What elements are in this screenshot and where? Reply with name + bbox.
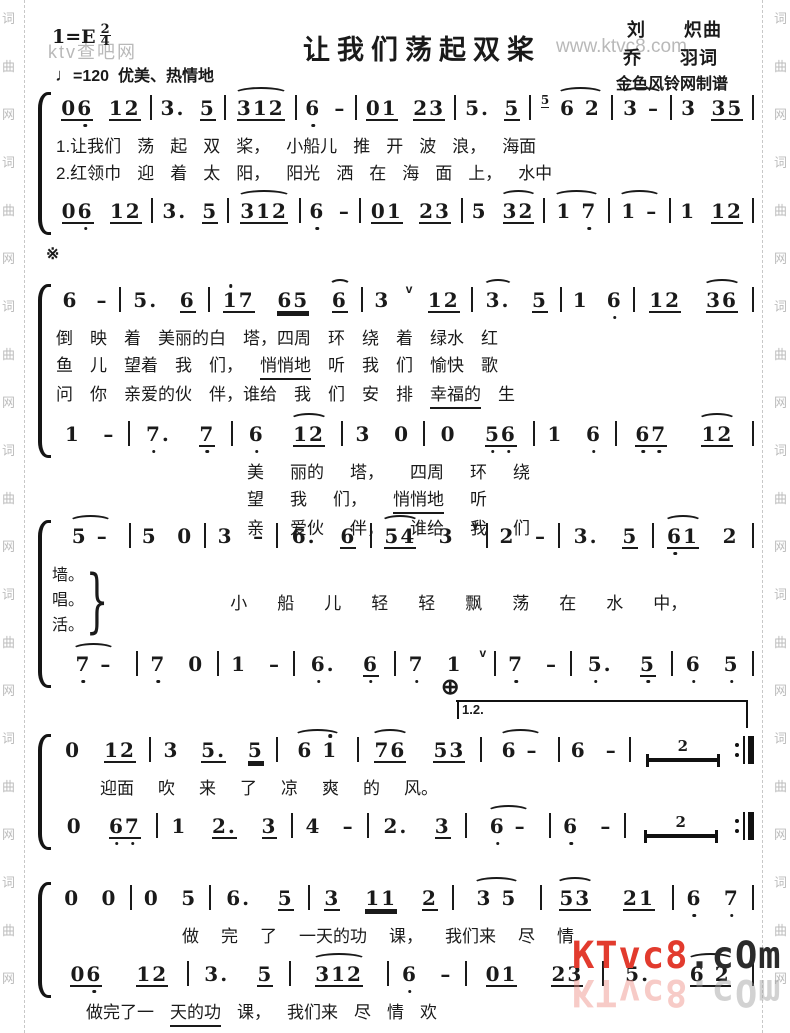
edge-watermark-char: 曲 xyxy=(774,200,787,219)
note-char: 2 xyxy=(152,963,168,985)
measure: 6– xyxy=(52,278,119,311)
note-char: 6 xyxy=(571,739,587,761)
lyrics-line: 鱼儿望着我们，悄悄地听我们愉快歌 xyxy=(52,354,754,380)
measure: 5321 xyxy=(542,876,672,911)
note-char: . xyxy=(308,525,317,547)
composer-credit: 刘 炽曲 xyxy=(627,16,722,42)
repeat-dot xyxy=(735,829,739,833)
measure: 2 xyxy=(626,804,735,847)
note-group: 5. xyxy=(465,97,490,119)
note-char: 6 xyxy=(277,289,293,311)
repeat-dot xyxy=(735,743,739,747)
thick-barline xyxy=(748,736,754,764)
system-brace xyxy=(38,284,51,458)
note-char: 0 xyxy=(394,423,410,445)
tempo-expression: 优美、热情地 xyxy=(118,68,214,85)
measure: 5– xyxy=(52,514,129,547)
note-group: 61 xyxy=(297,739,338,761)
notes-line: 06712.34–2.36–6–2 xyxy=(52,804,754,850)
note-group: 1 xyxy=(547,423,563,445)
note-char: 0 xyxy=(64,887,80,909)
barline xyxy=(752,523,754,548)
lyric-token: 阳光 xyxy=(286,162,320,186)
note-char: 6 xyxy=(311,653,327,675)
measure: 0612 xyxy=(52,189,151,224)
lyric-token: 尽 xyxy=(354,1001,371,1027)
lyrics-line: 美丽的塔，四周环绕 xyxy=(52,461,754,485)
note-group: 56 xyxy=(485,423,517,447)
octave-dot-below xyxy=(730,914,734,918)
lyric-token: 水 xyxy=(606,589,623,614)
edge-watermark-char: 词 xyxy=(2,872,15,891)
lyric-token: 轻 xyxy=(418,589,435,614)
measure: 6712 xyxy=(617,412,752,447)
lyric-token: 环 xyxy=(328,327,345,351)
note-group: 5– xyxy=(72,525,109,547)
edge-watermark-char: 网 xyxy=(774,248,787,267)
watermark-bottom-reflection: KTvc8.cOm xyxy=(572,974,782,1010)
note-char: . xyxy=(220,963,229,985)
note-char: 5 xyxy=(72,525,88,547)
note-char: 3 xyxy=(218,525,234,547)
lyric-token: 海 xyxy=(402,162,419,186)
note-group: 12 xyxy=(136,963,168,987)
octave-dot-below xyxy=(673,552,677,556)
note-char: – xyxy=(97,525,109,547)
note-char: . xyxy=(590,525,599,547)
note-char: 7 xyxy=(374,739,390,761)
octave-dot-below xyxy=(693,914,697,918)
barline xyxy=(752,885,754,910)
edge-watermark-char: 网 xyxy=(2,536,15,555)
lyric-token: 在 xyxy=(369,162,386,186)
lyric-token: 水中 xyxy=(518,162,552,186)
lyric-token: 我们来 xyxy=(287,1001,338,1027)
octave-dot-below xyxy=(93,990,97,994)
rest-tick xyxy=(715,830,718,843)
note-char: 2 xyxy=(585,97,601,119)
note-group: 312 xyxy=(240,200,288,224)
note-group: 5 xyxy=(278,887,294,911)
lyric-token: 小 xyxy=(230,589,247,614)
note-char: 6 xyxy=(607,289,623,311)
note-char: 5 xyxy=(384,525,400,547)
lyric-token: 我 xyxy=(294,383,311,409)
note-char: 6 xyxy=(402,963,418,985)
note-char: – xyxy=(600,815,612,837)
note-group: 3– xyxy=(623,97,660,119)
lyric-token: 中， xyxy=(653,589,687,614)
note-char: 2 xyxy=(623,887,639,909)
edge-watermark-char: 曲 xyxy=(774,344,787,363)
note-char: – xyxy=(646,200,658,222)
note-char: 0 xyxy=(188,653,204,675)
note-group: 35 xyxy=(476,887,517,909)
verse-ending: 唱。 xyxy=(52,592,84,610)
octave-dot-below xyxy=(316,227,320,231)
repeat-dots xyxy=(735,819,739,833)
edge-watermark-char: 曲 xyxy=(774,56,787,75)
measure: 6– xyxy=(297,86,354,119)
measure: 6– xyxy=(467,804,549,837)
note-group: 6 xyxy=(332,289,348,313)
note-group: 5 xyxy=(724,653,740,675)
note-char: 3 xyxy=(356,423,372,445)
lyric-token: 红 xyxy=(481,327,498,351)
lyric-token: 丽的 xyxy=(290,461,324,485)
note-char: 1 xyxy=(109,97,125,119)
note-char: . xyxy=(327,653,336,675)
note-char: . xyxy=(481,97,490,119)
edge-watermark-char: 网 xyxy=(2,968,15,987)
system-brace xyxy=(38,734,51,850)
octave-dot-below xyxy=(514,680,518,684)
edge-watermark-char: 曲 xyxy=(2,632,15,651)
lyric-token: 听 xyxy=(328,354,345,380)
measure: 3– xyxy=(206,514,276,547)
key-signature-text: 1=E xyxy=(52,26,96,48)
lyric-token: 美丽的白 xyxy=(158,327,226,351)
lyric-token: 我 xyxy=(175,354,192,380)
octave-dot-below xyxy=(206,450,210,454)
barline xyxy=(752,421,754,446)
note-char: 5 xyxy=(181,887,197,909)
note-group: 0 xyxy=(144,887,160,909)
measure: 16 xyxy=(562,278,633,311)
note-char: 0 xyxy=(486,963,502,985)
barline xyxy=(752,95,754,120)
repeat-dots xyxy=(735,743,739,757)
edge-watermark-char: 曲 xyxy=(2,776,15,795)
octave-dot-below xyxy=(588,227,592,231)
note-group: 5 xyxy=(257,963,273,987)
measure: 012 xyxy=(52,728,149,763)
lyric-token: 映 xyxy=(90,327,107,351)
coda-icon: ⊕ xyxy=(441,674,459,700)
octave-dot-below xyxy=(730,680,734,684)
lyric-token: 上， xyxy=(468,162,502,186)
lyric-token: 凉 xyxy=(281,777,298,801)
note-char: 3 xyxy=(237,97,253,119)
measure: 17656 xyxy=(210,278,361,313)
note-group: 1 xyxy=(447,653,463,675)
measure: 1– xyxy=(52,412,128,445)
edge-watermark-char: 网 xyxy=(2,104,15,123)
lyric-token: 开 xyxy=(386,135,403,159)
note-char: 6 xyxy=(560,97,576,119)
note-group: 3. xyxy=(204,963,229,985)
note-char: 7 xyxy=(150,653,166,675)
note-group: 3 xyxy=(218,525,234,547)
lyric-token: 们， xyxy=(209,354,243,380)
note-char: 5 xyxy=(200,97,216,119)
note-group: 23 xyxy=(413,97,445,121)
note-char: 1 xyxy=(65,423,81,445)
lyric-token: 迎面 xyxy=(100,777,134,801)
measure: 5.5 xyxy=(572,642,671,677)
note-char: 3 xyxy=(324,887,340,909)
measure: 312 xyxy=(229,189,299,224)
measure: 1236 xyxy=(635,278,752,313)
notes-line: 7–701–6.671v7–5.565 xyxy=(52,642,754,688)
note-char: 7 xyxy=(581,200,597,222)
edge-watermark-char: 曲 xyxy=(2,200,15,219)
note-char: 5 xyxy=(485,423,501,445)
note-char: 2 xyxy=(665,289,681,311)
note-char: 1 xyxy=(104,739,120,761)
octave-dot-below xyxy=(657,450,661,454)
octave-dot-below xyxy=(82,680,86,684)
note-char: 2 xyxy=(126,200,142,222)
note-group: 11 xyxy=(365,887,397,911)
barline xyxy=(752,287,754,312)
edge-watermark-char: 网 xyxy=(2,824,15,843)
measure: 50 xyxy=(131,514,205,547)
note-group: – xyxy=(546,653,558,675)
lyric-token: 儿 xyxy=(90,354,107,380)
note-char: 1 xyxy=(322,739,338,761)
system-brace xyxy=(38,92,51,235)
note-char: 1 xyxy=(293,423,309,445)
note-char: 5 xyxy=(278,887,294,909)
edge-watermark-char: 网 xyxy=(774,824,787,843)
octave-dot-below xyxy=(311,124,315,128)
lyric-token: 迎 xyxy=(137,162,154,186)
system-brace xyxy=(38,882,51,998)
note-char: 2 xyxy=(727,200,743,222)
lyric-token: 的 xyxy=(363,777,380,801)
octave-dot-below xyxy=(408,990,412,994)
note-group: 2. xyxy=(212,815,237,839)
thin-barline xyxy=(743,812,745,840)
note-char: 3 xyxy=(503,200,519,222)
note-group: 1 xyxy=(231,653,247,675)
note-group: 3 xyxy=(262,815,278,839)
lyric-token: 吹 xyxy=(158,777,175,801)
octave-dot-above xyxy=(229,284,233,288)
rest-bar xyxy=(646,758,720,762)
measure: 5.6 xyxy=(121,278,208,313)
note-group: 0 xyxy=(188,653,204,675)
edge-watermark-char: 词 xyxy=(774,872,787,891)
note-group: 6 xyxy=(402,963,418,985)
measure: 2.3 xyxy=(369,804,466,839)
measure: 543v xyxy=(372,514,487,549)
measure: 532 xyxy=(463,189,544,224)
note-group: 7 xyxy=(150,653,166,675)
note-char: 2 xyxy=(272,200,288,222)
lyric-token: 小船儿 xyxy=(286,135,337,159)
note-group: 23 xyxy=(419,200,451,224)
lyric-token: 2.红领巾 xyxy=(56,162,121,186)
note-char: . xyxy=(604,653,613,675)
lyric-token: 爽 xyxy=(322,777,339,801)
octave-dot-below xyxy=(496,842,500,846)
note-char: 5 xyxy=(724,653,740,675)
lyric-token: 情 xyxy=(387,1001,404,1027)
lyric-token: 在 xyxy=(559,589,576,614)
note-char: 6 xyxy=(363,653,379,675)
note-group: 0 xyxy=(102,887,118,909)
note-char: 1 xyxy=(428,289,444,311)
lyric-token: 环 xyxy=(470,461,487,485)
measure: 1– xyxy=(610,189,669,222)
measure: 3.5 xyxy=(473,278,560,313)
rest-measure-count: 2 xyxy=(678,737,688,755)
note-group: 32 xyxy=(503,200,535,224)
sheet-music-page: { "page":{"ink":"#1a1a1a","paper":"#ffff… xyxy=(0,0,790,1033)
measure: 612 xyxy=(233,412,341,447)
note-char: 2 xyxy=(444,289,460,311)
note-char: 6 xyxy=(86,963,102,985)
note-char: 6 xyxy=(226,887,242,909)
lyric-token: 塔，四周 xyxy=(243,327,311,351)
rest-bar xyxy=(644,834,718,838)
measure: 6– xyxy=(389,952,465,985)
right-edge-dashed-line xyxy=(762,0,763,1033)
measure: 3– xyxy=(613,86,671,119)
lyric-token: 绕 xyxy=(513,461,530,485)
note-group: 6 xyxy=(687,887,703,909)
note-group: 06 xyxy=(70,963,102,987)
note-char: 6 xyxy=(249,423,265,445)
octave-dot-below xyxy=(491,450,495,454)
breath-mark: v xyxy=(406,282,413,296)
measure: 35.5 xyxy=(151,728,276,763)
note-char: 7 xyxy=(409,653,425,675)
note-group: 1– xyxy=(621,200,658,222)
note-char: 4 xyxy=(400,525,416,547)
note-char: 6 xyxy=(501,423,517,445)
lyric-token: 飘 xyxy=(465,589,482,614)
note-char: 2 xyxy=(717,423,733,445)
note-char: 7 xyxy=(724,887,740,909)
lyric-token: 听 xyxy=(470,488,487,514)
lyrics-line: 1.让我们荡起双桨，小船儿推开波浪，海面 xyxy=(52,135,754,159)
lyric-token: 着 xyxy=(396,327,413,351)
measure: 6– xyxy=(560,728,629,761)
lyrics-line: 2.红领巾迎着太阳，阳光洒在海面上，水中 xyxy=(52,162,754,186)
note-char: 3 xyxy=(435,200,451,222)
segno-icon: ※ xyxy=(46,244,59,264)
note-char: 5 xyxy=(559,887,575,909)
lyrics-line: 望我们，悄悄地听 xyxy=(52,488,754,514)
note-group: 61 xyxy=(667,525,699,549)
lyrics-line: 倒映着美丽的白塔，四周环绕着绿水红 xyxy=(52,327,754,351)
lyric-token: 推 xyxy=(353,135,370,159)
edge-watermark-char: 词 xyxy=(774,8,787,27)
note-group: 5 xyxy=(248,739,264,763)
note-char: 6 xyxy=(502,739,518,761)
edge-watermark-char: 词 xyxy=(774,152,787,171)
note-char: 3 xyxy=(161,97,177,119)
note-char: 5 xyxy=(501,887,517,909)
note-group: 7 xyxy=(508,653,524,675)
note-group: – xyxy=(253,525,265,547)
note-char: 3 xyxy=(262,815,278,837)
measure: 7.7 xyxy=(130,412,231,447)
note-char: 3 xyxy=(240,200,256,222)
note-group: 3 xyxy=(374,289,390,311)
lyric-token: 美 xyxy=(247,461,264,485)
repeat-dot xyxy=(735,753,739,757)
lyric-token: 问 xyxy=(56,383,73,409)
edge-watermark-char: 曲 xyxy=(774,488,787,507)
tempo-value: =120 xyxy=(73,68,109,85)
note-char: 6 xyxy=(109,815,125,837)
note-char: . xyxy=(217,739,226,761)
note-char: 1 xyxy=(447,653,463,675)
note-char: 3 xyxy=(711,97,727,119)
measure: 562 xyxy=(531,86,611,119)
measure: 2– xyxy=(488,514,558,547)
lyric-token: 欢 xyxy=(420,1001,437,1027)
measure: 61 xyxy=(278,728,357,761)
note-char: – xyxy=(515,815,527,837)
note-group: 0 xyxy=(441,423,457,445)
notes-line: 6–5.6176563v123.5161236 xyxy=(52,278,754,324)
note-group: 3 xyxy=(435,815,451,839)
edge-watermark-char: 曲 xyxy=(2,344,15,363)
note-char: 1 xyxy=(253,97,269,119)
octave-dot-below xyxy=(131,842,135,846)
measure: 3.5 xyxy=(560,514,651,549)
octave-dot-below xyxy=(317,680,321,684)
lyric-token: 课， xyxy=(389,925,423,949)
lyric-token: 了 xyxy=(260,925,277,949)
note-group: 0 xyxy=(65,739,81,761)
repeat-dot xyxy=(735,819,739,823)
note-char: 5 xyxy=(293,289,309,311)
lyric-token: 双 xyxy=(203,135,220,159)
lyric-token: 天的功 xyxy=(170,1001,221,1027)
note-char: . xyxy=(399,815,408,837)
lyric-token: 来 xyxy=(199,777,216,801)
edge-watermark-char: 词 xyxy=(2,296,15,315)
notes-line: 06123.53126–0123532171–112 xyxy=(52,189,754,235)
measure: 6– xyxy=(301,189,359,222)
note-group: 5 xyxy=(532,289,548,313)
note-char: 6 xyxy=(390,739,406,761)
note-char: 1 xyxy=(502,963,518,985)
edge-watermark-char: 网 xyxy=(2,392,15,411)
shared-lyrics: 小船儿轻轻飘荡在水中， xyxy=(230,589,687,614)
note-char: 3 xyxy=(435,815,451,837)
note-char: 3 xyxy=(315,963,331,985)
note-group: 6 xyxy=(340,525,356,549)
octave-dot-below xyxy=(646,680,650,684)
lyric-token: 生 xyxy=(498,383,515,409)
note-group: 5 xyxy=(504,97,520,121)
note-group: 12 xyxy=(711,200,743,224)
note-group: 7 xyxy=(724,887,740,909)
note-group: 1 xyxy=(171,815,187,837)
edge-watermark-char: 词 xyxy=(774,584,787,603)
lyric-token: 四周 xyxy=(410,461,444,485)
note-group: 0 xyxy=(64,887,80,909)
note-char: 5 xyxy=(142,525,158,547)
measure: 12.3 xyxy=(158,804,292,839)
notes-line: 5–503–6.6543v2–3.5612 xyxy=(52,514,754,560)
note-group: 5. xyxy=(133,289,158,311)
note-group: 12 xyxy=(110,200,142,224)
note-char: – xyxy=(535,525,547,547)
note-char: 5 xyxy=(504,97,520,119)
note-group: 0 xyxy=(67,815,83,837)
thick-barline xyxy=(748,812,754,840)
note-char: 2 xyxy=(723,525,739,547)
note-char: . xyxy=(178,200,187,222)
